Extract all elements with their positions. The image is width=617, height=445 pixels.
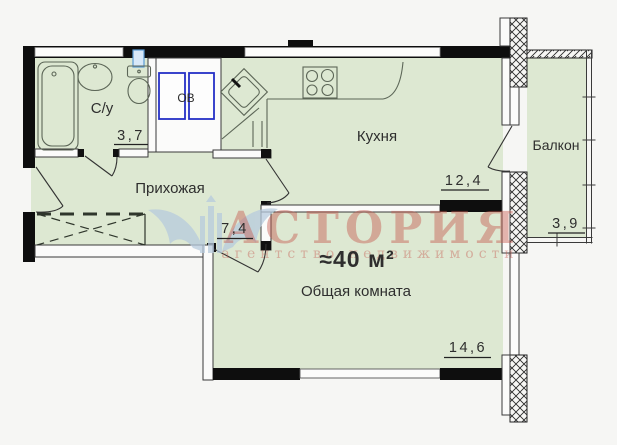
left-wall-upper: [23, 46, 35, 168]
bathroom-door-jamb-left: [78, 149, 84, 157]
living-bottom-wall-right: [440, 368, 508, 380]
top-wall-stub: [288, 40, 313, 47]
living-right-window: [510, 253, 519, 355]
bathroom-wall-right: [119, 149, 148, 157]
column-bottom: [510, 355, 527, 422]
kitchen-area: 12,4: [445, 173, 483, 189]
living-left-wall: [203, 245, 213, 380]
left-wall-lower: [23, 212, 35, 262]
balcony-label: Балкон: [533, 137, 580, 153]
hallway-area: 7,4: [221, 221, 249, 237]
bathroom-door-jamb-right: [113, 149, 119, 157]
total-area-label: ≈40 м²: [319, 246, 394, 272]
floor-plan-drawing: АСТОРИЯ агентство недвижимости С/у 3,7 О…: [0, 0, 617, 445]
water-pipe: [133, 50, 144, 67]
floor-plan-page: АСТОРИЯ агентство недвижимости С/у 3,7 О…: [0, 0, 617, 445]
wall-strip-bottom: [502, 355, 510, 415]
bathroom-utility-wall: [148, 58, 156, 152]
kitchen-right-wall: [502, 58, 510, 125]
top-wall-inset-left: [35, 48, 123, 57]
kitchen-window: [245, 48, 440, 57]
balcony-sidelight-window: [510, 87, 519, 125]
hallway-bottom-wall: [35, 245, 213, 257]
living-window: [300, 369, 440, 378]
bathroom-area: 3,7: [117, 128, 145, 144]
living-label: Общая комната: [301, 283, 412, 300]
kitchen-door-jamb-top: [261, 149, 271, 158]
living-area: 14,6: [449, 340, 487, 356]
column-top: [510, 18, 527, 87]
utility-label: ОВ: [177, 91, 194, 105]
living-bottom-wall-left: [213, 368, 300, 380]
balcony-area: 3,9: [552, 216, 580, 232]
kitchen-label: Кухня: [357, 128, 397, 145]
hallway-label: Прихожая: [135, 180, 205, 197]
bathroom-label: С/у: [91, 100, 114, 117]
right-wall-stub-top: [500, 18, 510, 46]
balcony-top-wall: [527, 50, 592, 58]
